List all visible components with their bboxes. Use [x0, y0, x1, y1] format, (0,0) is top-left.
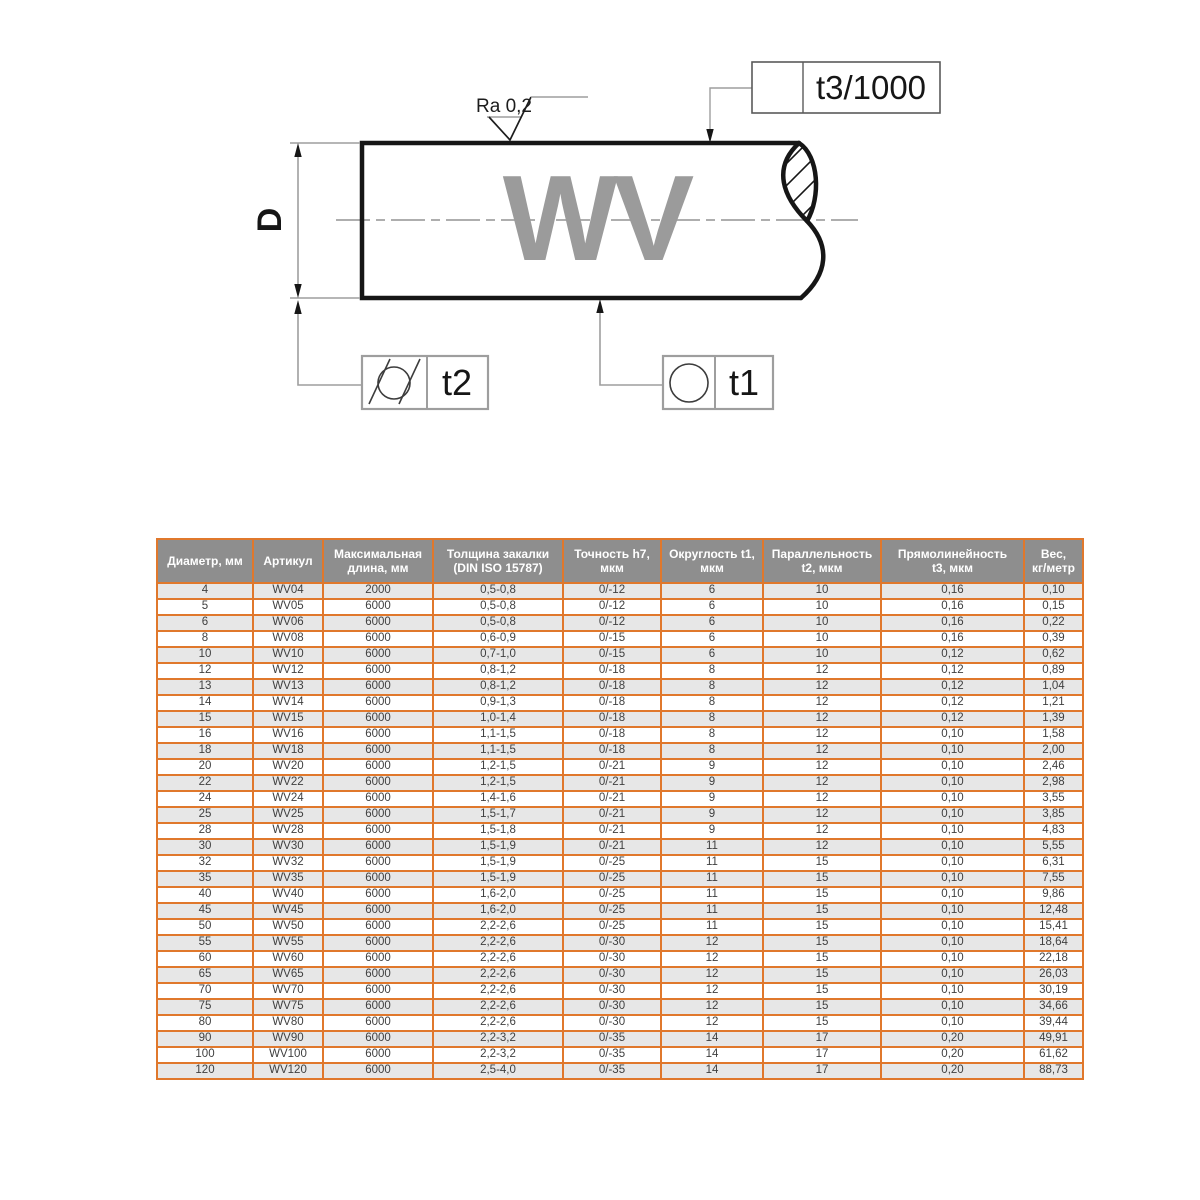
- table-cell: 4: [157, 583, 253, 599]
- table-cell: 11: [661, 887, 763, 903]
- table-cell: 1,5-1,8: [433, 823, 563, 839]
- table-cell: 8: [661, 679, 763, 695]
- table-cell: 49,91: [1024, 1031, 1083, 1047]
- table-cell: 0/-21: [563, 807, 661, 823]
- table-cell: 1,2-1,5: [433, 759, 563, 775]
- dimension-label-d: D: [251, 208, 289, 233]
- roundness-callout: t1: [596, 299, 773, 409]
- table-cell: 12: [763, 775, 881, 791]
- table-cell: 8: [661, 743, 763, 759]
- table-cell: WV32: [253, 855, 323, 871]
- table-cell: 6000: [323, 823, 433, 839]
- table-cell: 45: [157, 903, 253, 919]
- table-cell: 12: [763, 727, 881, 743]
- table-cell: 14: [157, 695, 253, 711]
- table-cell: 0/-21: [563, 759, 661, 775]
- table-row: 20WV2060001,2-1,50/-219120,102,46: [157, 759, 1083, 775]
- table-cell: 3,85: [1024, 807, 1083, 823]
- table-cell: 70: [157, 983, 253, 999]
- table-cell: 2,2-2,6: [433, 935, 563, 951]
- table-cell: 61,62: [1024, 1047, 1083, 1063]
- table-cell: WV05: [253, 599, 323, 615]
- table-cell: 2,2-2,6: [433, 983, 563, 999]
- table-cell: 0/-25: [563, 919, 661, 935]
- table-cell: 12: [763, 743, 881, 759]
- table-cell: 0,20: [881, 1031, 1024, 1047]
- table-cell: WV50: [253, 919, 323, 935]
- table-cell: 0/-18: [563, 727, 661, 743]
- table-cell: 2,98: [1024, 775, 1083, 791]
- table-row: 18WV1860001,1-1,50/-188120,102,00: [157, 743, 1083, 759]
- table-cell: 7,55: [1024, 871, 1083, 887]
- table-cell: 25: [157, 807, 253, 823]
- table-cell: 6000: [323, 839, 433, 855]
- shaft-technical-drawing: WV D Ra 0,2 t3/1000: [0, 0, 1200, 530]
- table-cell: 6000: [323, 1063, 433, 1079]
- table-cell: 0,10: [881, 743, 1024, 759]
- table-cell: WV04: [253, 583, 323, 599]
- table-cell: 2,2-3,2: [433, 1031, 563, 1047]
- table-cell: 10: [763, 631, 881, 647]
- table-cell: 6000: [323, 727, 433, 743]
- table-cell: 0,10: [881, 759, 1024, 775]
- table-row: 5WV0560000,5-0,80/-126100,160,15: [157, 599, 1083, 615]
- table-cell: 30,19: [1024, 983, 1083, 999]
- table-cell: 1,5-1,9: [433, 871, 563, 887]
- table-cell: 0,10: [881, 807, 1024, 823]
- table-cell: 0,10: [881, 999, 1024, 1015]
- table-row: 80WV8060002,2-2,60/-3012150,1039,44: [157, 1015, 1083, 1031]
- table-cell: 0,39: [1024, 631, 1083, 647]
- table-row: 60WV6060002,2-2,60/-3012150,1022,18: [157, 951, 1083, 967]
- table-cell: 11: [661, 919, 763, 935]
- table-cell: 0/-30: [563, 999, 661, 1015]
- table-cell: 12: [157, 663, 253, 679]
- table-row: 6WV0660000,5-0,80/-126100,160,22: [157, 615, 1083, 631]
- table-cell: 0,22: [1024, 615, 1083, 631]
- table-cell: WV60: [253, 951, 323, 967]
- table-cell: 0,16: [881, 631, 1024, 647]
- table-cell: 0,16: [881, 615, 1024, 631]
- table-cell: 0/-30: [563, 1015, 661, 1031]
- table-row: 14WV1460000,9-1,30/-188120,121,21: [157, 695, 1083, 711]
- table-cell: 15: [763, 887, 881, 903]
- table-cell: 2,2-2,6: [433, 999, 563, 1015]
- table-cell: 20: [157, 759, 253, 775]
- table-cell: 8: [661, 663, 763, 679]
- table-cell: 1,2-1,5: [433, 775, 563, 791]
- table-cell: 0,12: [881, 647, 1024, 663]
- table-cell: 0,5-0,8: [433, 583, 563, 599]
- table-cell: 80: [157, 1015, 253, 1031]
- table-cell: 0,20: [881, 1047, 1024, 1063]
- table-cell: 6000: [323, 919, 433, 935]
- table-cell: 6000: [323, 887, 433, 903]
- table-cell: 0,12: [881, 679, 1024, 695]
- table-cell: WV08: [253, 631, 323, 647]
- table-row: 50WV5060002,2-2,60/-2511150,1015,41: [157, 919, 1083, 935]
- table-cell: 1,58: [1024, 727, 1083, 743]
- table-cell: 0,10: [881, 967, 1024, 983]
- table-cell: 12: [763, 711, 881, 727]
- table-cell: 0/-12: [563, 583, 661, 599]
- table-cell: 75: [157, 999, 253, 1015]
- spec-table: Диаметр, ммАртикулМаксимальная длина, мм…: [156, 538, 1084, 1080]
- table-cell: 0,10: [881, 839, 1024, 855]
- table-cell: WV35: [253, 871, 323, 887]
- table-cell: 2,46: [1024, 759, 1083, 775]
- table-cell: 12: [661, 983, 763, 999]
- table-row: 15WV1560001,0-1,40/-188120,121,39: [157, 711, 1083, 727]
- table-cell: 12: [763, 679, 881, 695]
- break-hatch-icon: [756, 104, 856, 235]
- table-cell: 0/-25: [563, 903, 661, 919]
- table-cell: 1,1-1,5: [433, 743, 563, 759]
- table-cell: 6000: [323, 775, 433, 791]
- column-header: Артикул: [253, 539, 323, 583]
- table-cell: 0,10: [881, 791, 1024, 807]
- table-cell: 6000: [323, 695, 433, 711]
- table-cell: 6000: [323, 871, 433, 887]
- table-cell: 6000: [323, 615, 433, 631]
- table-cell: 65: [157, 967, 253, 983]
- spec-table-container: Диаметр, ммАртикулМаксимальная длина, мм…: [156, 538, 1084, 1080]
- table-cell: 1,21: [1024, 695, 1083, 711]
- table-cell: WV20: [253, 759, 323, 775]
- table-cell: 10: [763, 615, 881, 631]
- table-row: 75WV7560002,2-2,60/-3012150,1034,66: [157, 999, 1083, 1015]
- table-cell: 6000: [323, 1015, 433, 1031]
- table-cell: 0/-30: [563, 967, 661, 983]
- table-cell: WV45: [253, 903, 323, 919]
- table-row: 120WV12060002,5-4,00/-3514170,2088,73: [157, 1063, 1083, 1079]
- table-cell: 0/-35: [563, 1047, 661, 1063]
- table-cell: 5,55: [1024, 839, 1083, 855]
- table-cell: 0,10: [881, 823, 1024, 839]
- table-cell: 8: [661, 711, 763, 727]
- table-cell: 0/-25: [563, 871, 661, 887]
- table-cell: 12: [661, 967, 763, 983]
- table-cell: 0/-30: [563, 935, 661, 951]
- table-cell: 6: [661, 615, 763, 631]
- table-cell: 28: [157, 823, 253, 839]
- table-cell: 0,10: [881, 887, 1024, 903]
- table-cell: 0,89: [1024, 663, 1083, 679]
- table-cell: 0,10: [881, 951, 1024, 967]
- table-cell: 2,2-3,2: [433, 1047, 563, 1063]
- table-cell: 0,7-1,0: [433, 647, 563, 663]
- table-cell: 10: [157, 647, 253, 663]
- table-cell: 0,10: [1024, 583, 1083, 599]
- table-row: 40WV4060001,6-2,00/-2511150,109,86: [157, 887, 1083, 903]
- table-cell: WV28: [253, 823, 323, 839]
- table-row: 25WV2560001,5-1,70/-219120,103,85: [157, 807, 1083, 823]
- table-cell: WV22: [253, 775, 323, 791]
- table-cell: 10: [763, 599, 881, 615]
- table-cell: WV13: [253, 679, 323, 695]
- table-cell: 0/-15: [563, 647, 661, 663]
- table-row: 13WV1360000,8-1,20/-188120,121,04: [157, 679, 1083, 695]
- table-cell: 0/-18: [563, 743, 661, 759]
- table-cell: 34,66: [1024, 999, 1083, 1015]
- table-cell: 0,12: [881, 695, 1024, 711]
- table-cell: 0/-35: [563, 1063, 661, 1079]
- roughness-callout: Ra 0,2: [476, 96, 588, 140]
- table-cell: 0,10: [881, 727, 1024, 743]
- table-cell: 0/-21: [563, 823, 661, 839]
- table-cell: 1,5-1,9: [433, 839, 563, 855]
- table-cell: 0,10: [881, 855, 1024, 871]
- table-cell: WV90: [253, 1031, 323, 1047]
- table-cell: WV18: [253, 743, 323, 759]
- table-cell: 0,15: [1024, 599, 1083, 615]
- table-cell: 6000: [323, 903, 433, 919]
- table-row: 8WV0860000,6-0,90/-156100,160,39: [157, 631, 1083, 647]
- table-cell: WV14: [253, 695, 323, 711]
- table-cell: 2,2-2,6: [433, 967, 563, 983]
- table-cell: 8: [661, 695, 763, 711]
- table-cell: 0/-12: [563, 615, 661, 631]
- table-cell: 88,73: [1024, 1063, 1083, 1079]
- table-cell: 1,5-1,7: [433, 807, 563, 823]
- table-cell: 9,86: [1024, 887, 1083, 903]
- table-cell: 0,5-0,8: [433, 615, 563, 631]
- table-cell: 8: [661, 727, 763, 743]
- table-cell: 16: [157, 727, 253, 743]
- table-cell: 1,0-1,4: [433, 711, 563, 727]
- straightness-callout: t3/1000: [706, 62, 940, 143]
- table-cell: WV75: [253, 999, 323, 1015]
- table-cell: 1,5-1,9: [433, 855, 563, 871]
- table-cell: 55: [157, 935, 253, 951]
- table-cell: 5: [157, 599, 253, 615]
- table-cell: 6000: [323, 1031, 433, 1047]
- table-cell: 1,6-2,0: [433, 887, 563, 903]
- table-cell: 0,10: [881, 919, 1024, 935]
- table-cell: 6000: [323, 935, 433, 951]
- table-row: 32WV3260001,5-1,90/-2511150,106,31: [157, 855, 1083, 871]
- table-cell: 0,10: [881, 935, 1024, 951]
- table-row: 65WV6560002,2-2,60/-3012150,1026,03: [157, 967, 1083, 983]
- table-cell: 0/-25: [563, 855, 661, 871]
- table-cell: 9: [661, 807, 763, 823]
- table-cell: WV30: [253, 839, 323, 855]
- table-cell: 2000: [323, 583, 433, 599]
- table-cell: 6000: [323, 791, 433, 807]
- table-cell: 0,10: [881, 871, 1024, 887]
- table-row: 45WV4560001,6-2,00/-2511150,1012,48: [157, 903, 1083, 919]
- table-cell: 15: [763, 871, 881, 887]
- table-cell: WV80: [253, 1015, 323, 1031]
- table-cell: 6000: [323, 647, 433, 663]
- table-cell: 0,10: [881, 903, 1024, 919]
- table-cell: 2,2-2,6: [433, 919, 563, 935]
- table-cell: 6000: [323, 599, 433, 615]
- table-cell: 15: [763, 951, 881, 967]
- table-cell: 0/-21: [563, 791, 661, 807]
- table-cell: 11: [661, 871, 763, 887]
- table-cell: 6,31: [1024, 855, 1083, 871]
- table-cell: 12: [661, 935, 763, 951]
- table-row: 70WV7060002,2-2,60/-3012150,1030,19: [157, 983, 1083, 999]
- table-cell: 6000: [323, 855, 433, 871]
- table-row: 12WV1260000,8-1,20/-188120,120,89: [157, 663, 1083, 679]
- table-cell: 2,5-4,0: [433, 1063, 563, 1079]
- table-cell: 0/-12: [563, 599, 661, 615]
- table-cell: 0/-18: [563, 695, 661, 711]
- table-cell: 12: [763, 823, 881, 839]
- table-cell: 0/-21: [563, 839, 661, 855]
- table-cell: WV06: [253, 615, 323, 631]
- table-cell: 15: [763, 1015, 881, 1031]
- table-cell: WV10: [253, 647, 323, 663]
- table-cell: 0,10: [881, 775, 1024, 791]
- table-cell: 12: [661, 1015, 763, 1031]
- table-cell: 6000: [323, 759, 433, 775]
- table-cell: 11: [661, 855, 763, 871]
- table-row: 100WV10060002,2-3,20/-3514170,2061,62: [157, 1047, 1083, 1063]
- table-cell: 6000: [323, 967, 433, 983]
- table-cell: 11: [661, 903, 763, 919]
- shaft-marking-wv: WV: [503, 150, 694, 286]
- table-cell: 0,9-1,3: [433, 695, 563, 711]
- table-cell: 0,16: [881, 583, 1024, 599]
- table-cell: WV120: [253, 1063, 323, 1079]
- table-cell: 0,20: [881, 1063, 1024, 1079]
- table-cell: 6000: [323, 679, 433, 695]
- cylindricity-callout: t2: [294, 300, 488, 409]
- table-cell: 6: [661, 647, 763, 663]
- table-cell: 1,6-2,0: [433, 903, 563, 919]
- table-cell: 9: [661, 791, 763, 807]
- table-cell: 12: [763, 791, 881, 807]
- table-cell: 6000: [323, 711, 433, 727]
- table-cell: 12: [763, 807, 881, 823]
- table-cell: 6000: [323, 1047, 433, 1063]
- table-cell: 6000: [323, 999, 433, 1015]
- table-cell: WV15: [253, 711, 323, 727]
- table-cell: 100: [157, 1047, 253, 1063]
- table-cell: 12: [763, 759, 881, 775]
- column-header: Вес, кг/метр: [1024, 539, 1083, 583]
- table-cell: 60: [157, 951, 253, 967]
- table-cell: 0/-18: [563, 711, 661, 727]
- table-row: 90WV9060002,2-3,20/-3514170,2049,91: [157, 1031, 1083, 1047]
- table-row: 4WV0420000,5-0,80/-126100,160,10: [157, 583, 1083, 599]
- table-cell: 39,44: [1024, 1015, 1083, 1031]
- table-row: 55WV5560002,2-2,60/-3012150,1018,64: [157, 935, 1083, 951]
- column-header: Максимальная длина, мм: [323, 539, 433, 583]
- table-row: 35WV3560001,5-1,90/-2511150,107,55: [157, 871, 1083, 887]
- table-cell: 24: [157, 791, 253, 807]
- table-cell: 2,2-2,6: [433, 951, 563, 967]
- table-cell: 17: [763, 1047, 881, 1063]
- table-cell: 0,10: [881, 983, 1024, 999]
- table-cell: 12: [763, 695, 881, 711]
- table-cell: 26,03: [1024, 967, 1083, 983]
- table-cell: 6: [157, 615, 253, 631]
- table-row: 10WV1060000,7-1,00/-156100,120,62: [157, 647, 1083, 663]
- table-cell: 0,8-1,2: [433, 679, 563, 695]
- table-cell: 15: [763, 967, 881, 983]
- table-cell: 0,12: [881, 711, 1024, 727]
- table-cell: 9: [661, 823, 763, 839]
- table-cell: 12: [763, 839, 881, 855]
- table-cell: WV25: [253, 807, 323, 823]
- table-cell: 12: [763, 663, 881, 679]
- table-cell: 8: [157, 631, 253, 647]
- table-row: 16WV1660001,1-1,50/-188120,101,58: [157, 727, 1083, 743]
- table-cell: 22: [157, 775, 253, 791]
- table-cell: 6000: [323, 631, 433, 647]
- table-cell: 6: [661, 631, 763, 647]
- column-header: Точность h7, мкм: [563, 539, 661, 583]
- table-cell: 90: [157, 1031, 253, 1047]
- table-cell: 15: [763, 919, 881, 935]
- column-header: Округлость t1, мкм: [661, 539, 763, 583]
- table-cell: 2,00: [1024, 743, 1083, 759]
- table-cell: WV24: [253, 791, 323, 807]
- table-cell: 0,12: [881, 663, 1024, 679]
- table-cell: 35: [157, 871, 253, 887]
- table-cell: 0,10: [881, 1015, 1024, 1031]
- table-cell: 0/-25: [563, 887, 661, 903]
- column-header: Прямолинейность t3, мкм: [881, 539, 1024, 583]
- table-cell: 1,04: [1024, 679, 1083, 695]
- table-cell: 15: [763, 999, 881, 1015]
- table-cell: 15: [157, 711, 253, 727]
- table-cell: 18,64: [1024, 935, 1083, 951]
- table-cell: 0/-15: [563, 631, 661, 647]
- table-cell: WV12: [253, 663, 323, 679]
- straightness-label: t3/1000: [816, 69, 926, 106]
- table-cell: 2,2-2,6: [433, 1015, 563, 1031]
- column-header: Диаметр, мм: [157, 539, 253, 583]
- table-cell: WV70: [253, 983, 323, 999]
- table-cell: 13: [157, 679, 253, 695]
- column-header: Толщина закалки (DIN ISO 15787): [433, 539, 563, 583]
- table-cell: 4,83: [1024, 823, 1083, 839]
- table-cell: 50: [157, 919, 253, 935]
- table-cell: WV65: [253, 967, 323, 983]
- table-cell: 15: [763, 935, 881, 951]
- table-cell: 0/-18: [563, 663, 661, 679]
- table-cell: 30: [157, 839, 253, 855]
- cylindricity-label: t2: [442, 362, 472, 403]
- table-cell: 15,41: [1024, 919, 1083, 935]
- table-row: 24WV2460001,4-1,60/-219120,103,55: [157, 791, 1083, 807]
- table-cell: 0,6-0,9: [433, 631, 563, 647]
- table-cell: 0/-18: [563, 679, 661, 695]
- table-cell: 3,55: [1024, 791, 1083, 807]
- table-cell: 1,39: [1024, 711, 1083, 727]
- table-cell: WV16: [253, 727, 323, 743]
- table-cell: 6000: [323, 743, 433, 759]
- table-cell: 6000: [323, 983, 433, 999]
- table-cell: 0/-30: [563, 983, 661, 999]
- table-cell: 32: [157, 855, 253, 871]
- column-header: Параллельность t2, мкм: [763, 539, 881, 583]
- table-cell: 12: [661, 999, 763, 1015]
- table-cell: 18: [157, 743, 253, 759]
- table-cell: 120: [157, 1063, 253, 1079]
- table-cell: 0,8-1,2: [433, 663, 563, 679]
- table-cell: 1,4-1,6: [433, 791, 563, 807]
- table-cell: 14: [661, 1031, 763, 1047]
- table-cell: 1,1-1,5: [433, 727, 563, 743]
- roundness-label: t1: [729, 362, 759, 403]
- table-cell: 22,18: [1024, 951, 1083, 967]
